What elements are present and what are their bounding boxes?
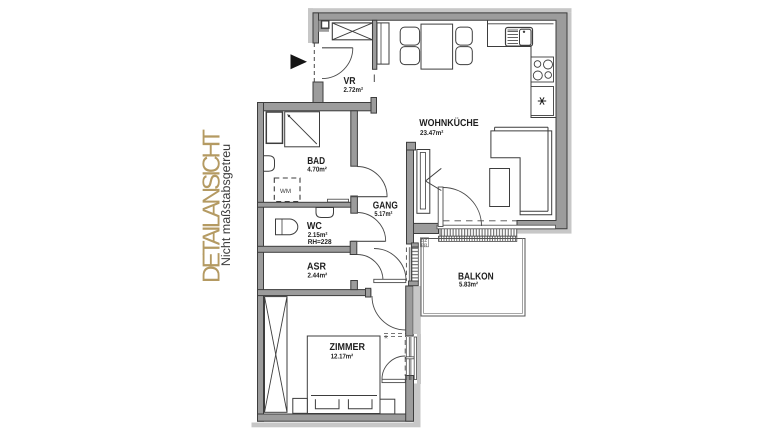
svg-text:ASR: ASR [307,262,327,273]
svg-text:GANG: GANG [373,200,398,211]
svg-text:VR: VR [344,76,357,87]
svg-text:WOHNKÜCHE: WOHNKÜCHE [419,117,479,129]
svg-text:12.17m²: 12.17m² [331,353,354,360]
svg-text:2.44m²: 2.44m² [308,272,328,279]
svg-text:5.83m²: 5.83m² [459,282,479,289]
svg-text:23.47m²: 23.47m² [420,130,444,137]
svg-text:Nicht maßstabsgetreu: Nicht maßstabsgetreu [219,144,233,266]
svg-text:4.70m²: 4.70m² [307,167,327,174]
svg-text:2.72m²: 2.72m² [344,87,364,94]
svg-text:BAD: BAD [307,156,325,167]
svg-text:5.17m²: 5.17m² [374,211,393,218]
svg-text:R: R [385,335,388,340]
svg-text:WM: WM [280,188,291,195]
svg-text:ZIMMER: ZIMMER [330,342,366,353]
svg-text:WC: WC [307,221,322,232]
svg-text:2.15m²: 2.15m² [308,232,328,239]
svg-text:RR: RR [421,242,427,247]
svg-text:RH=228: RH=228 [308,239,332,246]
